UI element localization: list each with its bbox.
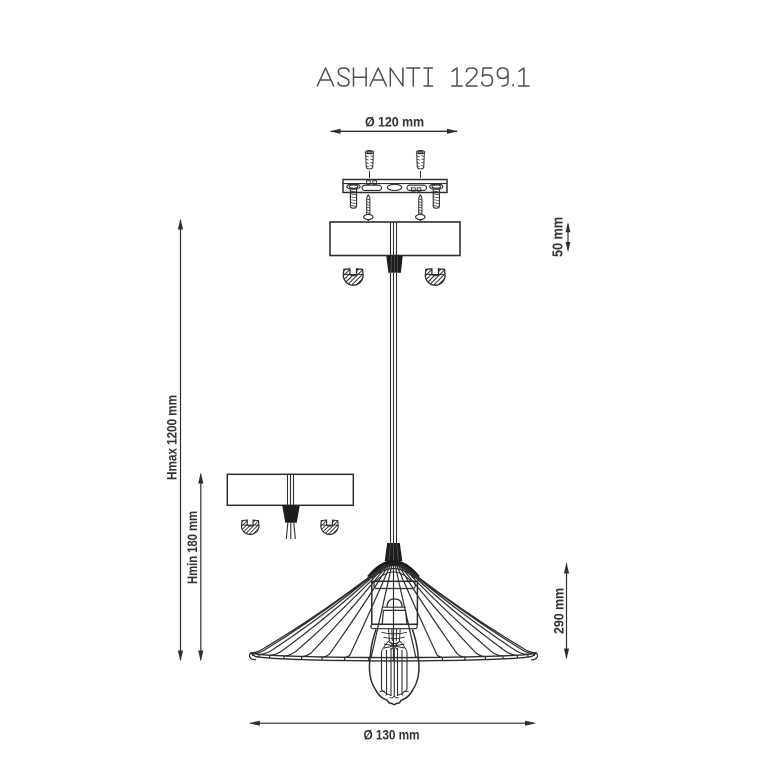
svg-text:50 mm: 50 mm (550, 217, 567, 257)
svg-text:Hmax 1200 mm: Hmax 1200 mm (164, 395, 180, 480)
svg-text:Ø 120 mm: Ø 120 mm (365, 114, 424, 130)
svg-text:Hmin 180 mm: Hmin 180 mm (184, 511, 200, 584)
svg-text:290 mm: 290 mm (551, 588, 567, 634)
svg-text:Ø 130 mm: Ø 130 mm (364, 727, 420, 743)
